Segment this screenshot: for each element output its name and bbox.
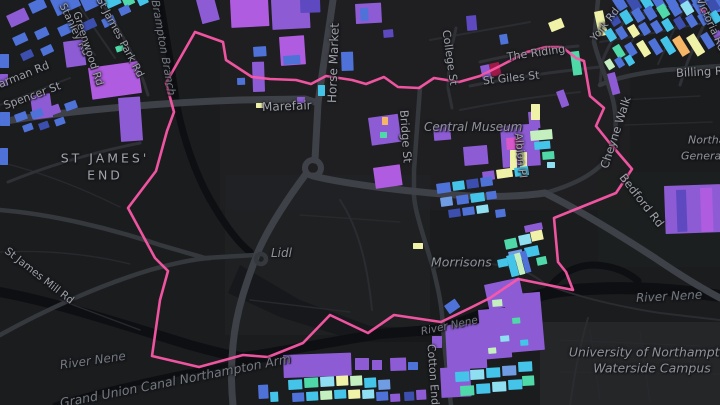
building (320, 390, 332, 400)
building (297, 97, 305, 103)
building (470, 369, 485, 380)
building (336, 375, 349, 386)
building (54, 117, 66, 127)
building (518, 234, 532, 246)
building (20, 49, 34, 61)
building (283, 55, 301, 65)
building (530, 129, 553, 141)
building (508, 379, 523, 390)
building (118, 4, 131, 16)
building (499, 34, 509, 45)
building (436, 182, 451, 194)
building (0, 54, 9, 68)
building (476, 383, 491, 394)
building (38, 121, 50, 131)
building (383, 29, 394, 38)
building (355, 3, 382, 24)
building (480, 176, 493, 187)
building (22, 123, 34, 133)
building (28, 0, 47, 14)
building (520, 339, 528, 346)
building (547, 162, 555, 168)
building (416, 389, 427, 400)
building (355, 358, 369, 370)
building (137, 0, 149, 6)
building (512, 317, 520, 324)
building (306, 391, 318, 401)
building (506, 137, 522, 150)
building (256, 103, 264, 108)
building (196, 0, 220, 24)
building (440, 196, 453, 207)
building (700, 8, 706, 13)
building (455, 371, 470, 382)
building (408, 362, 418, 370)
building (115, 44, 125, 52)
building (486, 191, 497, 200)
building (432, 336, 442, 348)
building (518, 361, 533, 372)
building (536, 256, 547, 266)
building (101, 15, 117, 29)
building (542, 151, 555, 160)
building (88, 61, 142, 100)
building (6, 8, 30, 28)
building (63, 39, 86, 68)
building (382, 117, 388, 125)
building (433, 125, 451, 141)
building (492, 299, 503, 307)
building (283, 353, 352, 378)
building (452, 180, 465, 191)
building (390, 393, 400, 402)
building (448, 208, 461, 218)
building (500, 335, 509, 342)
building (300, 0, 320, 13)
building (341, 52, 354, 71)
building (531, 104, 540, 120)
building (510, 150, 517, 170)
building (118, 96, 143, 141)
building (502, 365, 517, 376)
building (444, 299, 460, 315)
building (413, 243, 423, 249)
building (348, 389, 360, 399)
building (230, 0, 269, 28)
building (270, 392, 279, 402)
building (320, 376, 335, 387)
building (253, 46, 267, 57)
building (445, 323, 487, 370)
building (534, 141, 551, 150)
building (334, 389, 346, 399)
building (0, 148, 8, 165)
building (390, 357, 406, 371)
building (460, 385, 475, 396)
building (404, 391, 414, 401)
building (522, 375, 535, 386)
map-canvas[interactable]: Sharman RdSpencer StStanley RdGreenwood … (0, 0, 720, 405)
building (0, 112, 10, 126)
building (700, 188, 714, 232)
building (378, 379, 391, 390)
building (292, 392, 304, 402)
building (318, 85, 325, 96)
building (237, 78, 245, 85)
building (495, 209, 506, 218)
building (372, 360, 382, 370)
building (40, 44, 54, 56)
building (373, 164, 403, 189)
building (492, 381, 507, 392)
map-svg (0, 0, 720, 405)
building (350, 375, 363, 386)
building (12, 32, 28, 46)
building (466, 178, 479, 189)
building (456, 194, 469, 205)
building (80, 0, 104, 12)
building (676, 190, 687, 232)
building (0, 74, 8, 86)
building (288, 379, 303, 390)
building (462, 206, 475, 216)
building (380, 132, 387, 138)
building (504, 238, 518, 250)
building (360, 8, 369, 21)
building (34, 27, 50, 41)
building (258, 384, 269, 399)
building (463, 145, 489, 166)
building (476, 204, 489, 214)
building (488, 347, 496, 354)
building (304, 377, 319, 388)
building (486, 367, 501, 378)
building (376, 391, 388, 401)
building (364, 377, 377, 388)
building (466, 15, 477, 31)
building (362, 389, 374, 399)
